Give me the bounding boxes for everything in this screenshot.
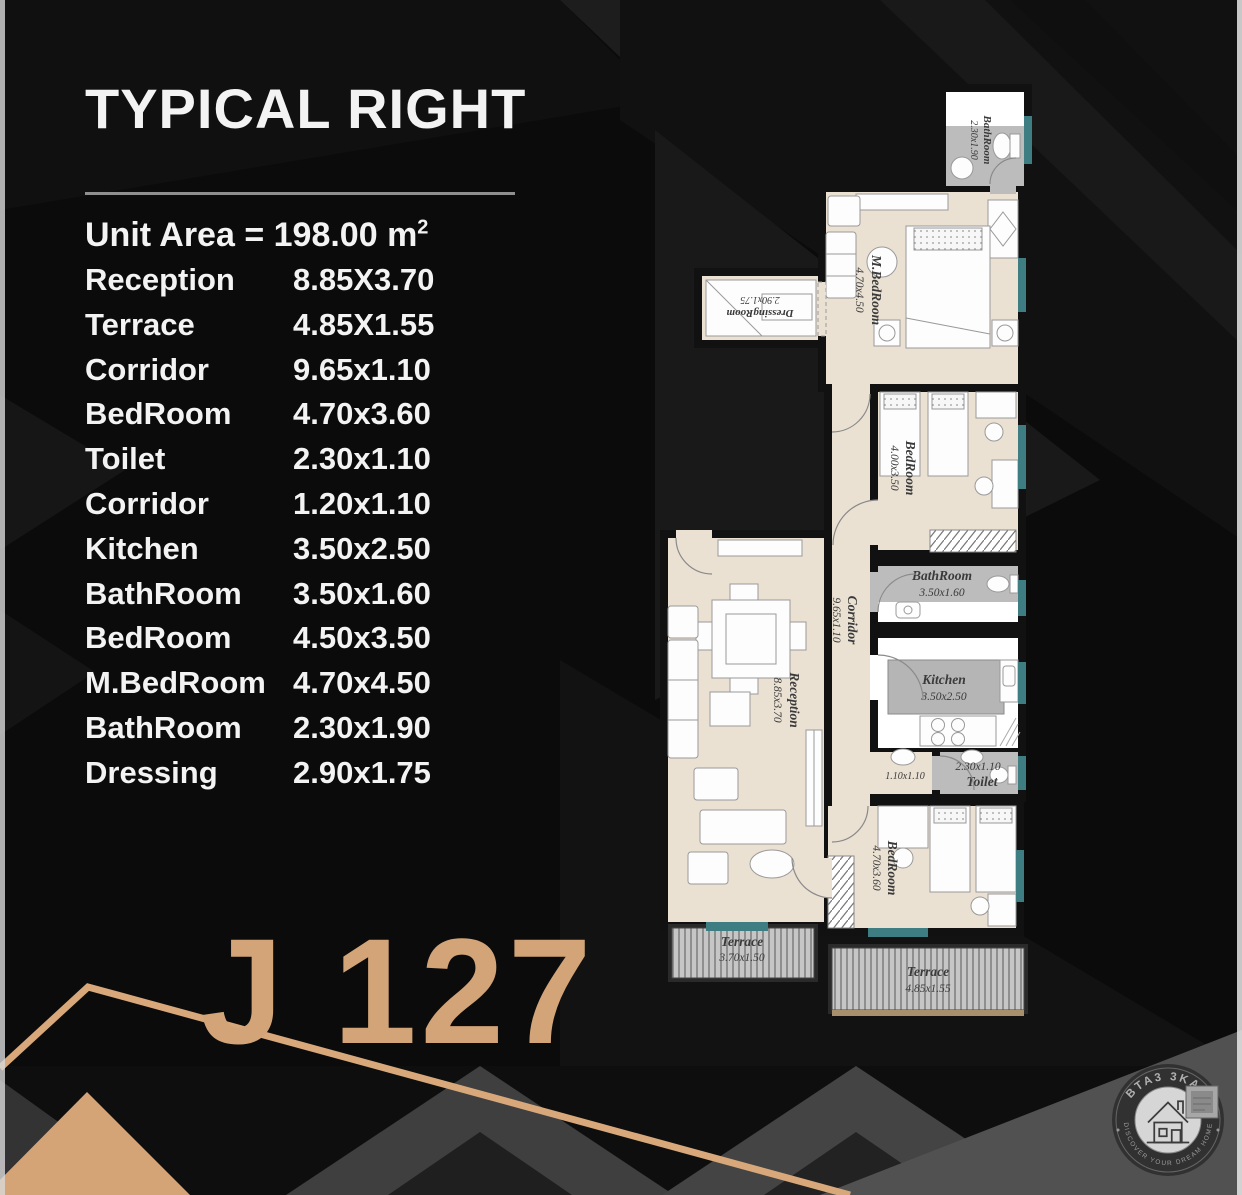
stamp-mark [1186,1086,1218,1118]
flyer-page: TYPICAL RIGHT Unit Area = 198.00 m2 Rece… [0,0,1242,1195]
brand-logo: BTA3 3KAR DISCOVER YOUR DREAM HOME [0,0,1242,1195]
